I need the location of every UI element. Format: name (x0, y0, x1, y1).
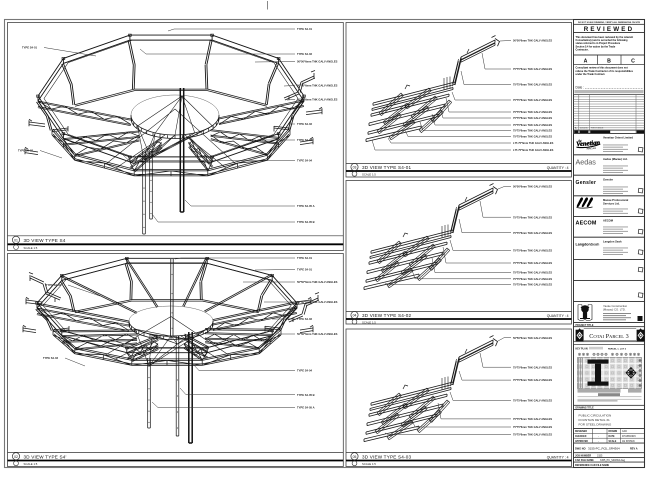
svg-text:DO NOT SCALE DRAWING, VERIFY A: DO NOT SCALE DRAWING, VERIFY ALL DIMENSI… (578, 21, 641, 24)
svg-text:00/00/15: 00/00/15 (580, 128, 589, 130)
svg-text:TYPE S4-02: TYPE S4-02 (46, 283, 61, 287)
svg-text:75*75*6mm THK GALV ANGLES: 75*75*6mm THK GALV ANGLES (513, 135, 552, 139)
svg-text:SCALE 1:5: SCALE 1:5 (362, 321, 376, 325)
svg-text:CHECKED: CHECKED (575, 436, 587, 438)
svg-text:75*75*6mm THK GALV ANGLES: 75*75*6mm THK GALV ANGLES (513, 365, 552, 369)
svg-text:TYPE S4-01: TYPE S4-01 (297, 268, 312, 272)
svg-text:DRAWN: DRAWN (609, 430, 618, 433)
svg-text:TYPE S4-01: TYPE S4-01 (297, 27, 312, 31)
svg-text:75*75*6mm THK GALV ANGLES: 75*75*6mm THK GALV ANGLES (513, 417, 552, 421)
svg-text:TYPE S4-02: TYPE S4-02 (297, 122, 312, 126)
svg-text:AS SHOWN: AS SHOWN (622, 440, 635, 443)
svg-text:75*75*6mm THK GALV ANGLES: 75*75*6mm THK GALV ANGLES (513, 399, 552, 403)
svg-text:50*50*6mm THK GALV ANGLES: 50*50*6mm THK GALV ANGLES (297, 332, 338, 336)
svg-text:75*75*6mm THK GALV ANGLES: 75*75*6mm THK GALV ANGLES (513, 283, 552, 287)
svg-text:TYPE S4-03: TYPE S4-03 (297, 138, 312, 142)
svg-text:QUANTITY : 4: QUANTITY : 4 (547, 455, 569, 459)
svg-text:3D VIEW TYPE S4-02: 3D VIEW TYPE S4-02 (362, 313, 411, 318)
svg-text:TYPE S4-03: TYPE S4-03 (43, 356, 58, 360)
svg-text:Contractor.: Contractor. (576, 49, 589, 52)
svg-text:50*50*6mm THK GALV ANGLES: 50*50*6mm THK GALV ANGLES (297, 280, 338, 284)
svg-text:Gensler: Gensler (603, 177, 613, 181)
svg-text:50*50*6mm THK GALV ANGLES: 50*50*6mm THK GALV ANGLES (513, 39, 552, 43)
svg-text:QUANTITY : 4: QUANTITY : 4 (547, 314, 569, 318)
svg-text:50*50*6mm THK GALV ANGLES: 50*50*6mm THK GALV ANGLES (513, 185, 552, 189)
svg-text:75*75*6mm THK GALV ANGLES: 75*75*6mm THK GALV ANGLES (513, 116, 552, 120)
svg-text:SCALE 1:5: SCALE 1:5 (362, 462, 376, 466)
svg-text:3D VIEW TYPE S4: 3D VIEW TYPE S4 (24, 238, 66, 243)
svg-text:Date :: Date : (576, 86, 585, 90)
svg-text:3155-PC_P(2)_SR4364: 3155-PC_P(2)_SR4364 (588, 447, 620, 451)
svg-text:75*75*6mm THK GALV ANGLES: 75*75*6mm THK GALV ANGLES (513, 261, 552, 265)
svg-text:COTAI PARCEL 3: COTAI PARCEL 3 (589, 333, 628, 340)
svg-text:3D VIEW TYPE S4-03: 3D VIEW TYPE S4-03 (362, 454, 411, 459)
svg-text:QUANTITY : 4: QUANTITY : 4 (547, 166, 569, 170)
svg-text:SCALE: SCALE (609, 440, 617, 443)
svg-text:TYPE S4-01: TYPE S4-01 (297, 256, 312, 260)
svg-text:SCALE 1:5: SCALE 1:5 (362, 173, 376, 177)
svg-text:DATE: DATE (609, 435, 616, 438)
svg-text:LangdonSeah: LangdonSeah (576, 243, 600, 247)
svg-text:Aedas (Macau) Ltd.: Aedas (Macau) Ltd. (603, 157, 628, 161)
svg-text:50*50*6mm THK GALV ANGLES: 50*50*6mm THK GALV ANGLES (297, 84, 338, 88)
svg-text:TYPE S4-02: TYPE S4-02 (297, 317, 312, 321)
svg-text:01: 01 (14, 238, 18, 242)
svg-text:75*75*6mm THK GALV ANGLES: 75*75*6mm THK GALV ANGLES (513, 67, 552, 71)
svg-text:75*75*6mm THK GALV ANGLES: 75*75*6mm THK GALV ANGLES (513, 425, 552, 429)
svg-text:FOUNTAIN DETAIL 31: FOUNTAIN DETAIL 31 (579, 418, 611, 422)
svg-text:(Macau) CO. LTD.: (Macau) CO. LTD. (603, 308, 626, 312)
svg-text:07/APR/2015: 07/APR/2015 (622, 435, 636, 438)
svg-text:TYPE S4-02: TYPE S4-02 (18, 149, 33, 153)
svg-text:TYPE S4-04: TYPE S4-04 (297, 159, 312, 163)
svg-text:3D VIEW TYPE S4-01: 3D VIEW TYPE S4-01 (362, 165, 411, 170)
svg-text:APPROVED: APPROVED (575, 440, 588, 443)
svg-text:SCALE 1:5: SCALE 1:5 (24, 246, 38, 250)
svg-text:AECOM: AECOM (576, 221, 597, 227)
svg-text:B: B (607, 58, 611, 64)
svg-text:CAD: CAD (622, 430, 627, 433)
svg-text:3155: 3155 (597, 454, 603, 457)
svg-text:CAD FILE NAME: CAD FILE NAME (575, 459, 594, 462)
svg-text:TYPE S4-05 B: TYPE S4-05 B (297, 220, 315, 224)
svg-text:TYPE S4-04: TYPE S4-04 (297, 369, 312, 373)
svg-text:TYPE S4-05 B: TYPE S4-05 B (297, 393, 315, 397)
svg-text:Macau Professional: Macau Professional (603, 198, 628, 202)
svg-text:L75 75*6mm THK GALV ANGLES: L75 75*6mm THK GALV ANGLES (513, 148, 554, 152)
svg-text:Langdon Seah: Langdon Seah (603, 239, 622, 243)
svg-text:FIRST ISSUE: FIRST ISSUE (591, 128, 604, 130)
svg-text:50*50*6mm THK GALV ANGLES: 50*50*6mm THK GALV ANGLES (297, 98, 338, 102)
svg-text:JOB NUMBER: JOB NUMBER (575, 454, 591, 457)
svg-text:TYPE S4-05 A: TYPE S4-05 A (297, 204, 315, 208)
svg-text:DESIGNED: DESIGNED (575, 431, 587, 433)
svg-text:KEY PLAN: KEY PLAN (576, 348, 588, 351)
svg-text:Services Ltd.: Services Ltd. (603, 201, 620, 205)
svg-text:75*75*6mm THK GALV ANGLES: 75*75*6mm THK GALV ANGLES (513, 83, 552, 87)
svg-text:REFERENCE CAD FILE NAME: REFERENCE CAD FILE NAME (575, 464, 610, 467)
svg-text:05: 05 (353, 455, 357, 459)
svg-text:75*75*6mm THK GALV ANGLES: 75*75*6mm THK GALV ANGLES (513, 231, 552, 235)
svg-text:02: 02 (14, 455, 18, 459)
svg-text:75*75*6mm THK GALV ANGLES: 75*75*6mm THK GALV ANGLES (513, 378, 552, 382)
svg-text:50*50*6mm THK GALV ANGLES: 50*50*6mm THK GALV ANGLES (297, 300, 338, 304)
svg-text:75*75*6mm THK GALV ANGLES: 75*75*6mm THK GALV ANGLES (513, 110, 552, 114)
svg-text:FOR STEEL DRAWING: FOR STEEL DRAWING (579, 422, 612, 426)
svg-text:3D VIEW TYPE S4': 3D VIEW TYPE S4' (24, 454, 67, 459)
svg-text:Gensler: Gensler (576, 180, 597, 186)
svg-text:REVIEWED: REVIEWED (584, 26, 635, 33)
svg-text:DWG NO: DWG NO (575, 448, 586, 451)
svg-text:REV A: REV A (630, 448, 638, 451)
svg-text:TYPE S4-02: TYPE S4-02 (297, 52, 312, 56)
svg-text:AECOM: AECOM (603, 219, 614, 223)
svg-text:SCALE 1:5: SCALE 1:5 (24, 462, 38, 466)
svg-text:04: 04 (353, 314, 357, 318)
svg-text:75*75*6mm THK GALV ANGLES: 75*75*6mm THK GALV ANGLES (513, 277, 552, 281)
svg-text:75*75*6mm THK GALV ANGLES: 75*75*6mm THK GALV ANGLES (513, 98, 552, 102)
svg-text:TYPE S4-01: TYPE S4-01 (22, 46, 37, 50)
svg-text:03: 03 (353, 166, 357, 170)
svg-text:TYPE S4-05 A: TYPE S4-05 A (297, 406, 315, 410)
svg-text:75*75*6mm THK GALV ANGLES: 75*75*6mm THK GALV ANGLES (513, 433, 552, 437)
svg-text:L75 75*6mm THK GALV ANGLES: L75 75*6mm THK GALV ANGLES (513, 141, 554, 145)
svg-text:Aedas: Aedas (576, 158, 597, 167)
svg-text:3155_PC_SR4364.dwg: 3155_PC_SR4364.dwg (600, 459, 626, 462)
svg-text:A: A (584, 58, 588, 64)
svg-text:under the Trade Contract.: under the Trade Contract. (576, 73, 606, 76)
svg-text:75*75*6mm THK GALV ANGLES: 75*75*6mm THK GALV ANGLES (513, 129, 552, 133)
svg-text:75*75*6mm THK GALV ANGLES: 75*75*6mm THK GALV ANGLES (513, 123, 552, 127)
svg-text:C: C (631, 58, 635, 64)
svg-text:50*50*6mm THK GALV ANGLES: 50*50*6mm THK GALV ANGLES (513, 336, 552, 340)
svg-text:75*75*6mm THK GALV ANGLES: 75*75*6mm THK GALV ANGLES (513, 215, 552, 219)
svg-text:Venetian Orient Limited: Venetian Orient Limited (603, 136, 633, 140)
svg-text:PARCEL 1, LOT 2: PARCEL 1, LOT 2 (608, 348, 627, 351)
svg-text:75*75*6mm THK GALV ANGLES: 75*75*6mm THK GALV ANGLES (513, 249, 552, 253)
svg-text:50*50*6mm THK GALV ANGLES: 50*50*6mm THK GALV ANGLES (297, 60, 338, 64)
svg-text:PUBLIC CIRCULATION: PUBLIC CIRCULATION (579, 414, 612, 418)
svg-text:75*75*6mm THK GALV ANGLES: 75*75*6mm THK GALV ANGLES (513, 271, 552, 275)
